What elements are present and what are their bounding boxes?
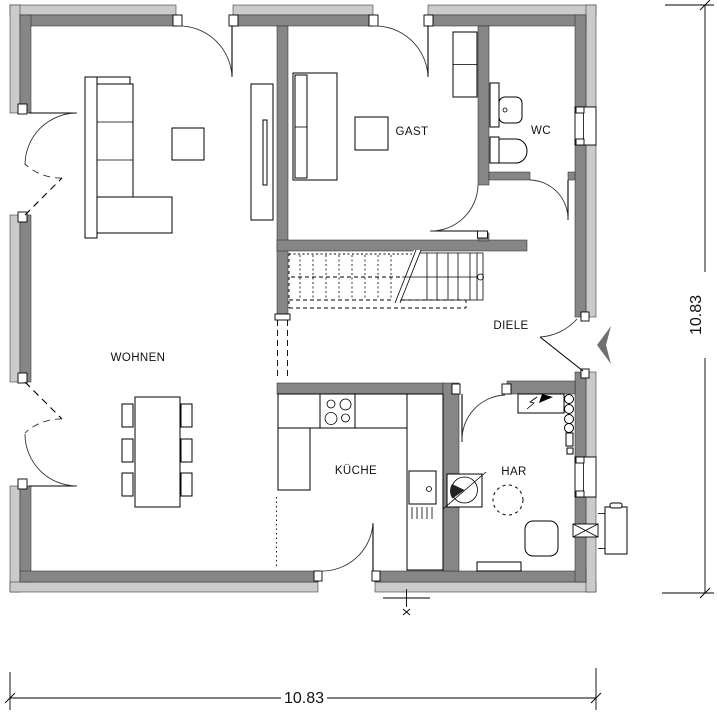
tv-board bbox=[251, 84, 273, 220]
door-terrace-left-lower bbox=[25, 382, 77, 486]
label-wc: WC bbox=[531, 125, 551, 137]
heat-pump-unit bbox=[598, 503, 627, 554]
floor-plan: WOHNEN GAST WC DIELE KÜCHE HAR 10.83 10.… bbox=[0, 0, 717, 715]
door-entrance bbox=[540, 319, 583, 371]
door-terrace-gast-top bbox=[373, 26, 428, 77]
distribution-board bbox=[518, 394, 564, 413]
coffee-table bbox=[172, 128, 204, 160]
dimension-bottom-value: 10.83 bbox=[284, 690, 324, 707]
door-wc bbox=[530, 180, 568, 220]
dining-table bbox=[122, 397, 192, 507]
dimension-right-value: 10.83 bbox=[688, 295, 705, 335]
door-terrace-left-upper bbox=[25, 113, 77, 215]
storage-tank bbox=[525, 521, 558, 556]
level-marker bbox=[383, 589, 430, 615]
bed bbox=[293, 73, 337, 180]
label-gast: GAST bbox=[396, 126, 429, 138]
washing-machine bbox=[443, 472, 486, 509]
label-wohnen: WOHNEN bbox=[111, 352, 166, 364]
wardrobe bbox=[453, 32, 477, 97]
meter-assembly bbox=[565, 395, 574, 455]
window-wc bbox=[575, 107, 596, 145]
window-har bbox=[575, 457, 596, 497]
dashed-outline-item bbox=[493, 485, 523, 515]
cooktop bbox=[320, 394, 355, 428]
door-gast bbox=[430, 185, 478, 231]
label-har: HAR bbox=[501, 466, 526, 478]
har-shelf bbox=[477, 562, 521, 571]
label-kueche: KÜCHE bbox=[335, 465, 377, 477]
washbasin bbox=[490, 83, 522, 127]
wall-sleeve bbox=[573, 524, 598, 537]
floor-plan-svg: WOHNEN GAST WC DIELE KÜCHE HAR 10.83 10.… bbox=[0, 0, 717, 715]
stair-cut-mask bbox=[392, 250, 421, 303]
sofa bbox=[85, 77, 172, 238]
door-terrace-wohnen-top bbox=[177, 26, 232, 77]
toilet bbox=[490, 137, 527, 163]
door-terrace-kitchen bbox=[320, 523, 373, 571]
door-har bbox=[462, 394, 505, 442]
staircase bbox=[289, 250, 484, 308]
side-table bbox=[355, 117, 388, 150]
label-diele: DIELE bbox=[493, 320, 528, 332]
entrance-arrow bbox=[597, 326, 611, 364]
